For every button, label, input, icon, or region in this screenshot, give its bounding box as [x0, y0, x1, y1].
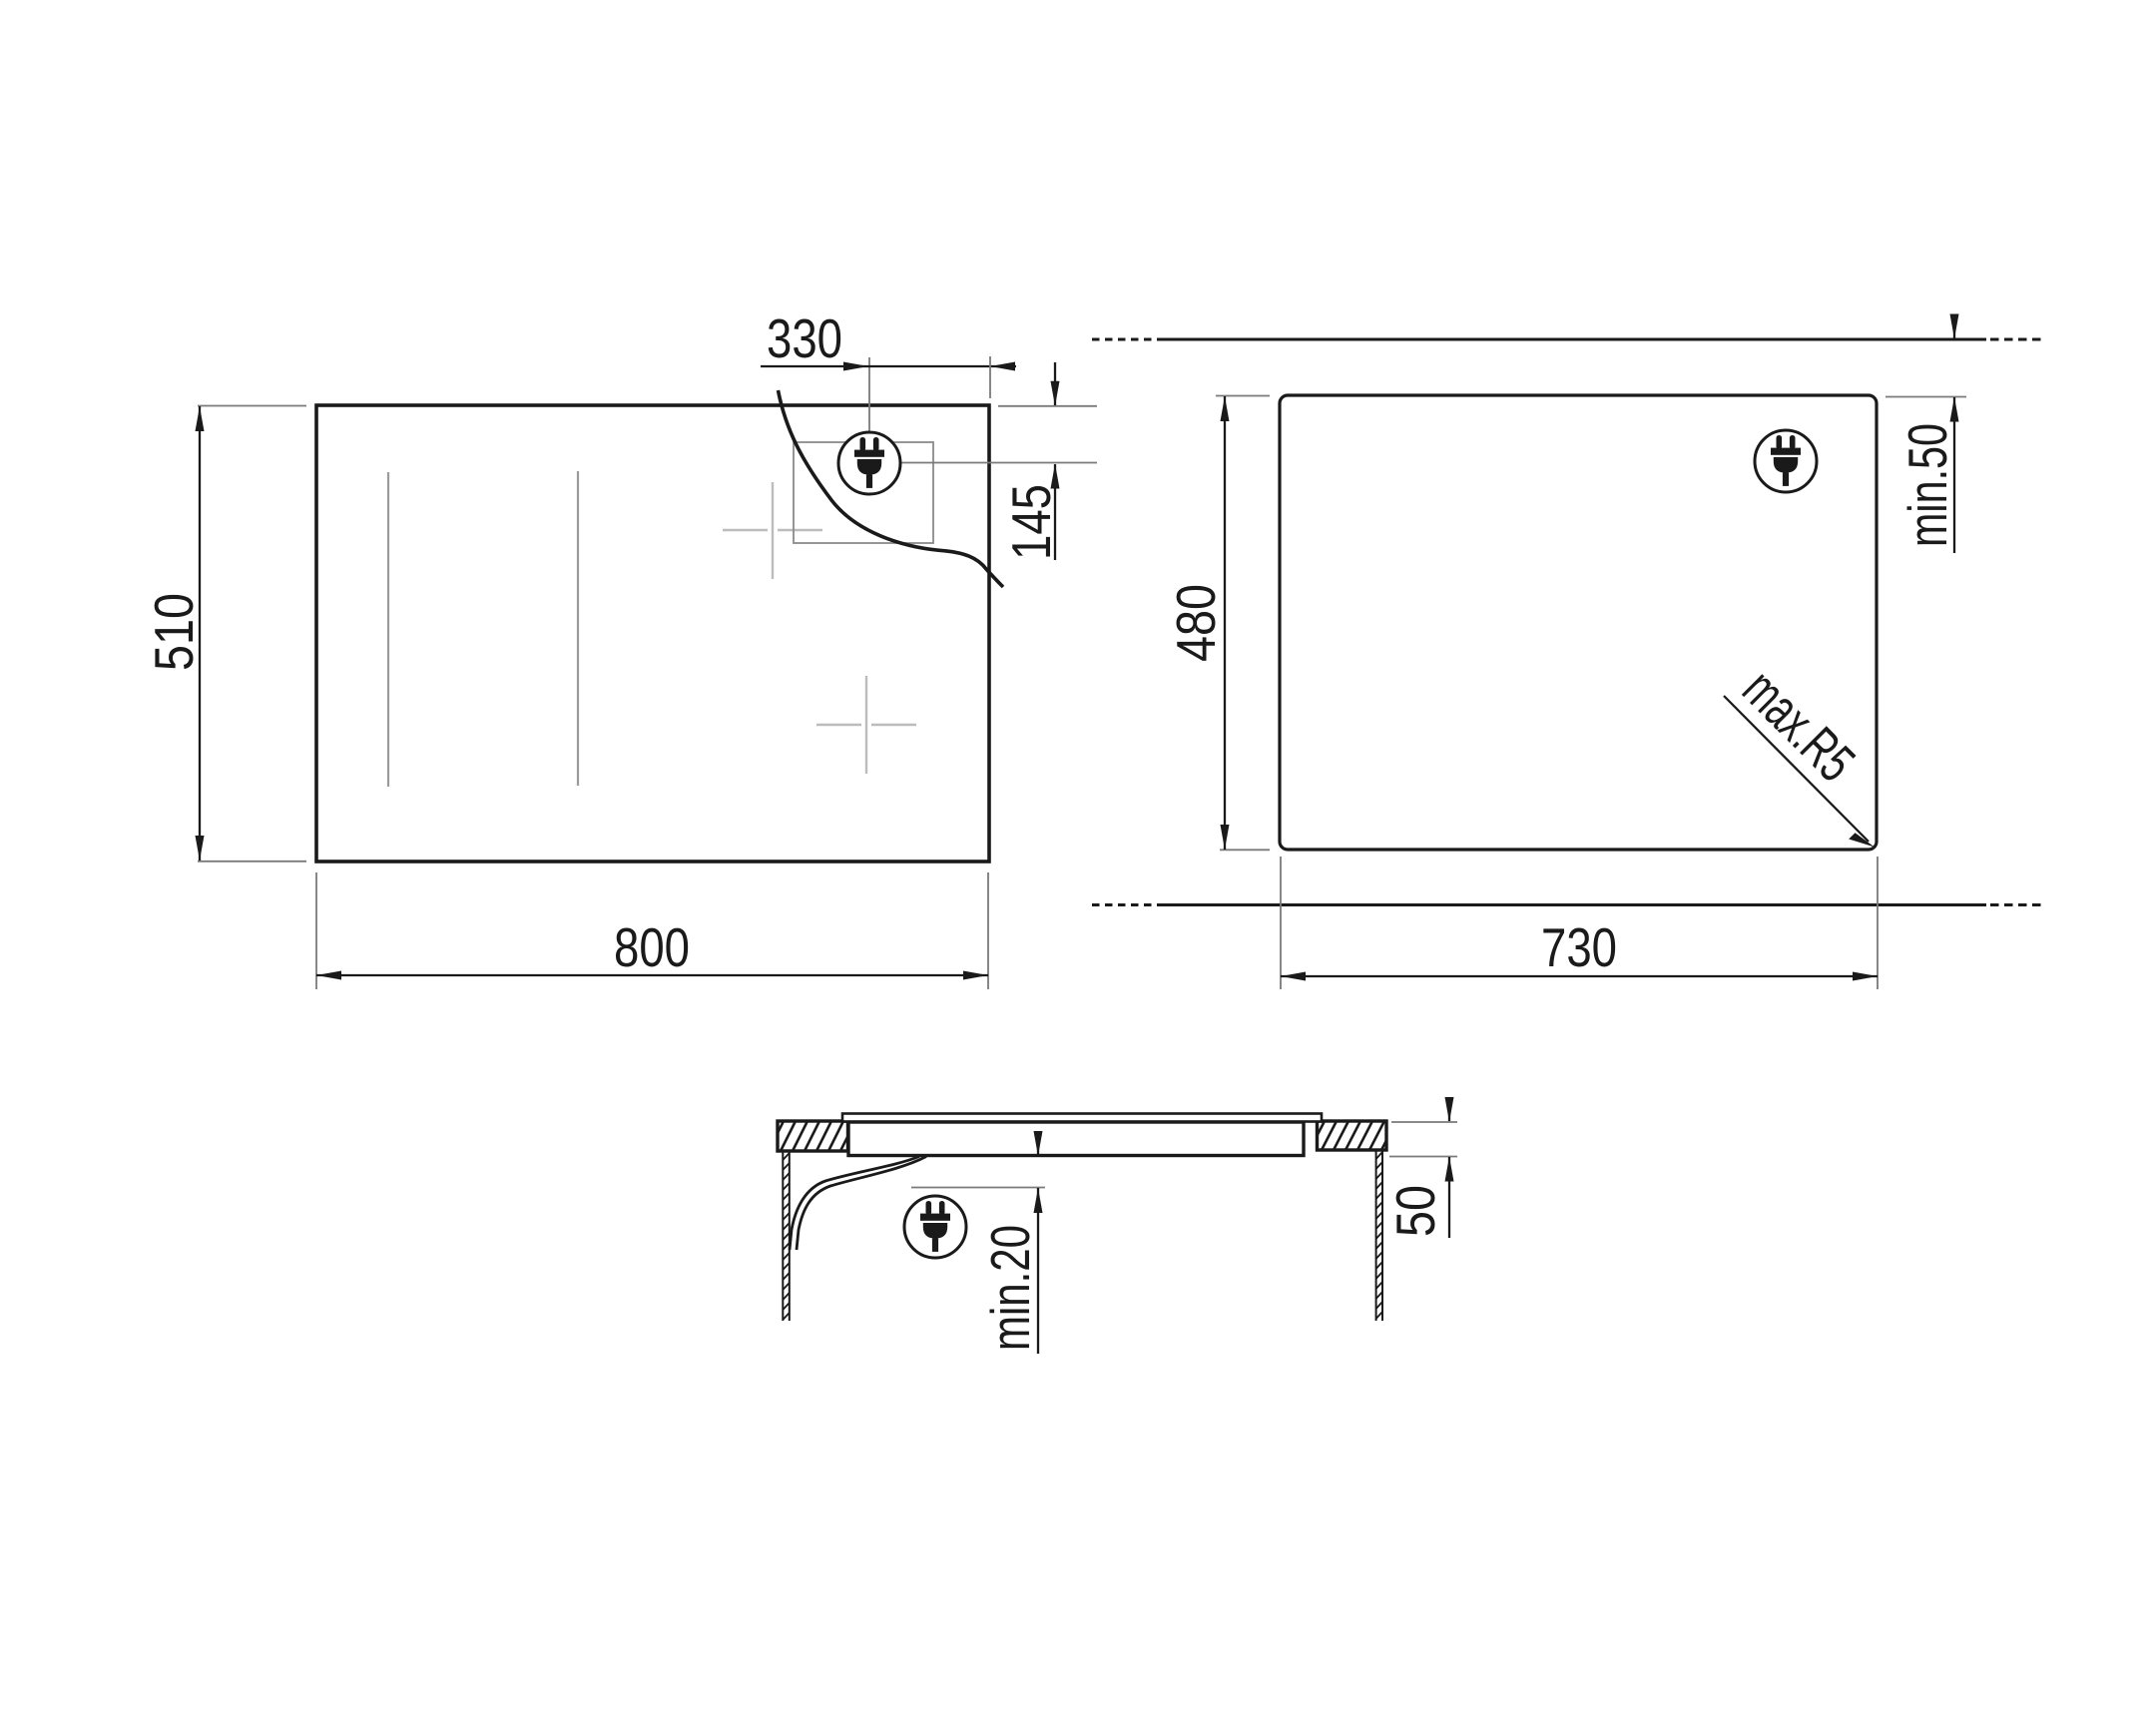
svg-text:330: 330 — [767, 307, 842, 369]
svg-text:510: 510 — [143, 593, 205, 671]
svg-text:480: 480 — [1165, 584, 1227, 662]
svg-text:145: 145 — [1000, 484, 1062, 560]
svg-text:min.50: min.50 — [1896, 423, 1958, 547]
svg-text:730: 730 — [1541, 916, 1617, 978]
svg-text:800: 800 — [614, 916, 690, 978]
svg-text:min.20: min.20 — [979, 1225, 1041, 1351]
svg-text:50: 50 — [1384, 1185, 1446, 1237]
